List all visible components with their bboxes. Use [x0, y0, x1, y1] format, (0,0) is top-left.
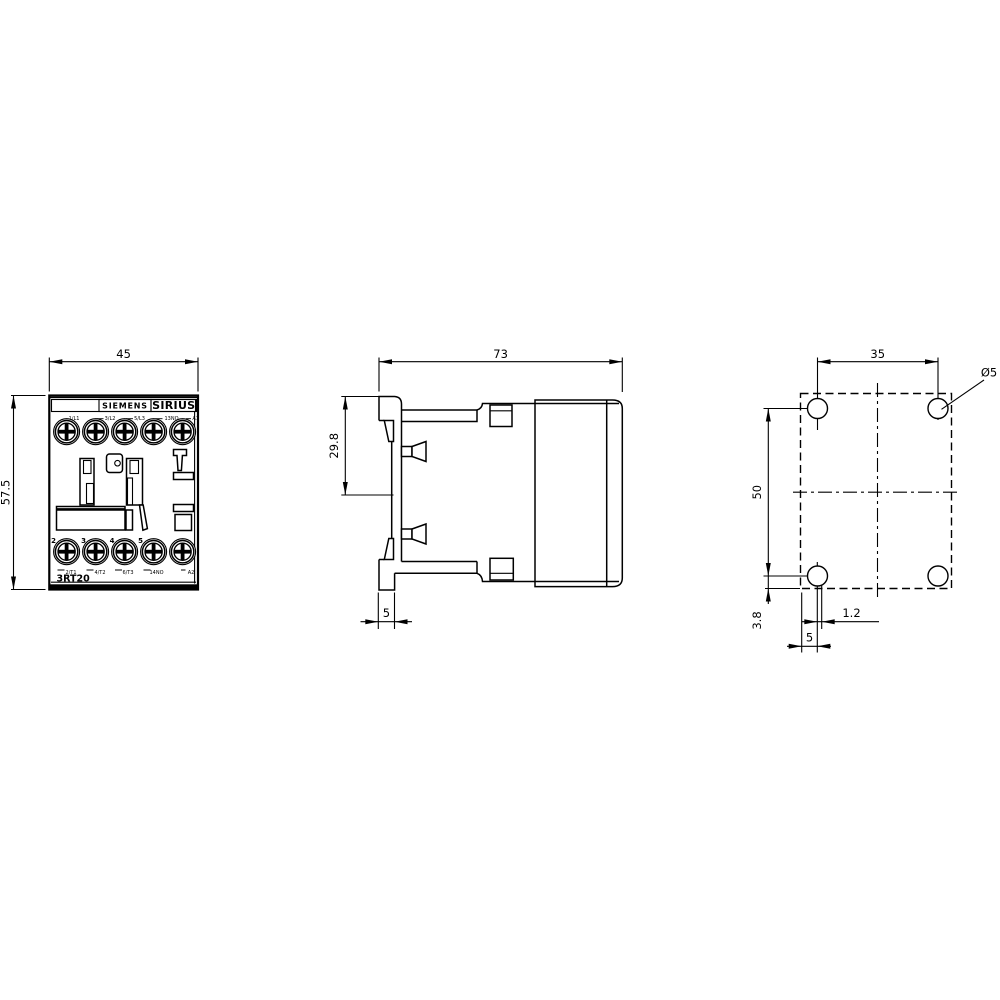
bottom-black-bar — [49, 584, 198, 589]
channel-top — [402, 410, 478, 422]
rail-depth-value: 5 — [383, 606, 390, 620]
terminal-screw — [112, 419, 138, 445]
arrowhead — [804, 619, 817, 624]
arrowhead — [379, 359, 392, 364]
pole-number: 2 — [51, 537, 56, 545]
latch-left-slot — [87, 484, 94, 504]
latch-left-window — [84, 461, 92, 474]
release-peg-top — [412, 442, 426, 462]
arrowhead — [343, 482, 348, 495]
terminal-label: 6/T3 — [122, 570, 133, 576]
side-offset-value: 5 — [806, 631, 813, 645]
arrowhead — [818, 359, 831, 364]
terminal-label: A2 — [188, 570, 195, 576]
guide-tab-top — [490, 405, 512, 427]
aux-slot-1 — [174, 473, 194, 480]
leader-line — [942, 380, 985, 409]
pole-number: 5 — [138, 537, 143, 545]
indicator-dot — [115, 460, 121, 466]
siemens-logo: SIEMENS — [102, 401, 148, 410]
terminal-screw — [112, 539, 138, 565]
extension-lines — [341, 397, 393, 496]
terminal-label: A1 — [192, 416, 199, 422]
device-outline-dashed — [801, 394, 952, 589]
latch-right — [127, 459, 143, 506]
front-width-value: 45 — [116, 347, 131, 361]
hole-spacing-v-dimension: 50 — [750, 409, 771, 605]
mounting-hole — [808, 399, 828, 419]
front-view: 45 57.5 SIEMENS SIRIUS 1/L1 3/L2 5/L3 — [0, 347, 199, 590]
release-lever — [174, 450, 187, 471]
mount-foot-bottom — [379, 560, 395, 591]
arrowhead — [766, 589, 771, 602]
technical-drawing: 45 57.5 SIEMENS SIRIUS 1/L1 3/L2 5/L3 — [0, 0, 1000, 1000]
terminal-screw — [54, 419, 80, 445]
terminal-screw — [141, 539, 167, 565]
hole-diameter-callout: Ø5 — [942, 366, 998, 410]
latch-right-tail — [140, 505, 148, 530]
sirius-logo: SIRIUS — [152, 399, 195, 412]
arrowhead — [766, 563, 771, 576]
hole-spacing-h-value: 35 — [870, 347, 885, 361]
bottom-offset-value: 3.8 — [750, 611, 764, 629]
arrowhead — [343, 397, 348, 410]
guide-tab-bottom — [490, 558, 513, 580]
front-height-dimension: 57.5 — [0, 396, 46, 590]
clip-height-value: 29.8 — [327, 433, 341, 459]
coil-block — [535, 400, 622, 587]
arrowhead — [49, 359, 62, 364]
arrowhead — [11, 577, 16, 590]
arrowhead — [365, 619, 378, 624]
arrowhead — [822, 619, 835, 624]
drawing-page: 45 57.5 SIEMENS SIRIUS 1/L1 3/L2 5/L3 — [0, 0, 1000, 1000]
arrowhead — [395, 619, 408, 624]
terminal-screw — [170, 419, 196, 445]
drilling-plan: 35 Ø5 50 3.8 1.2 — [750, 347, 997, 653]
front-width-dimension: 45 — [49, 347, 198, 392]
rail-depth-dimension: 5 — [361, 593, 413, 630]
terminal-label: 3/L2 — [105, 416, 116, 422]
hole-spacing-h-dimension: 35 — [818, 347, 939, 364]
mount-slot-tab — [126, 510, 133, 530]
bottom-offset-dimension: 3.8 — [750, 589, 771, 630]
rail-barb-bottom — [384, 539, 393, 560]
rail-barb-top — [384, 421, 393, 442]
channel-bottom — [395, 562, 477, 574]
terminal-screw — [83, 419, 109, 445]
arrowhead — [11, 396, 16, 409]
slot-offset-dimension: 1.2 — [802, 606, 879, 624]
side-depth-value: 73 — [493, 347, 508, 361]
side-view: 73 29.8 — [327, 347, 622, 629]
front-height-value: 57.5 — [0, 480, 13, 506]
extension-lines — [49, 358, 198, 392]
side-depth-dimension: 73 — [379, 347, 622, 392]
terminal-label: 4/T2 — [94, 570, 105, 576]
extension-lines — [379, 358, 622, 393]
mounting-hole — [928, 399, 948, 419]
arrowhead — [766, 409, 771, 422]
latch-right-window — [130, 461, 139, 474]
side-profile — [379, 397, 622, 591]
latch-right-slot — [128, 478, 133, 505]
terminal-screw — [83, 539, 109, 565]
mounting-hole — [928, 566, 948, 586]
front-mechanism-details — [57, 450, 194, 531]
extension-lines — [11, 396, 46, 590]
terminal-label: 14NO — [149, 570, 163, 576]
clip-height-dimension: 29.8 — [327, 397, 394, 496]
arrowhead — [789, 644, 802, 649]
terminal-screw — [141, 419, 167, 445]
hole-spacing-v-value: 50 — [750, 485, 764, 500]
side-offset-dimension: 5 — [787, 631, 831, 649]
terminal-screw — [170, 539, 196, 565]
nameplate-band: SIEMENS SIRIUS — [52, 399, 197, 412]
arrowhead — [185, 359, 198, 364]
slot-offset-value: 1.2 — [842, 606, 860, 620]
release-peg-bottom-stem — [402, 529, 413, 539]
release-peg-top-stem — [402, 447, 413, 457]
top-terminal-screws — [54, 419, 196, 445]
mounting-hole — [808, 566, 828, 586]
aux-slot-3 — [175, 515, 192, 531]
release-peg-bottom — [412, 524, 426, 544]
terminal-screw — [54, 539, 80, 565]
mount-foot-top — [379, 397, 402, 421]
bottom-terminal-screws — [54, 539, 196, 565]
arrowhead — [609, 359, 622, 364]
arrowhead — [817, 644, 830, 649]
arrowhead — [925, 359, 938, 364]
terminal-label: 5/L3 — [134, 416, 145, 422]
hole-diameter-value: Ø5 — [981, 366, 997, 380]
aux-slot-2 — [174, 505, 194, 512]
